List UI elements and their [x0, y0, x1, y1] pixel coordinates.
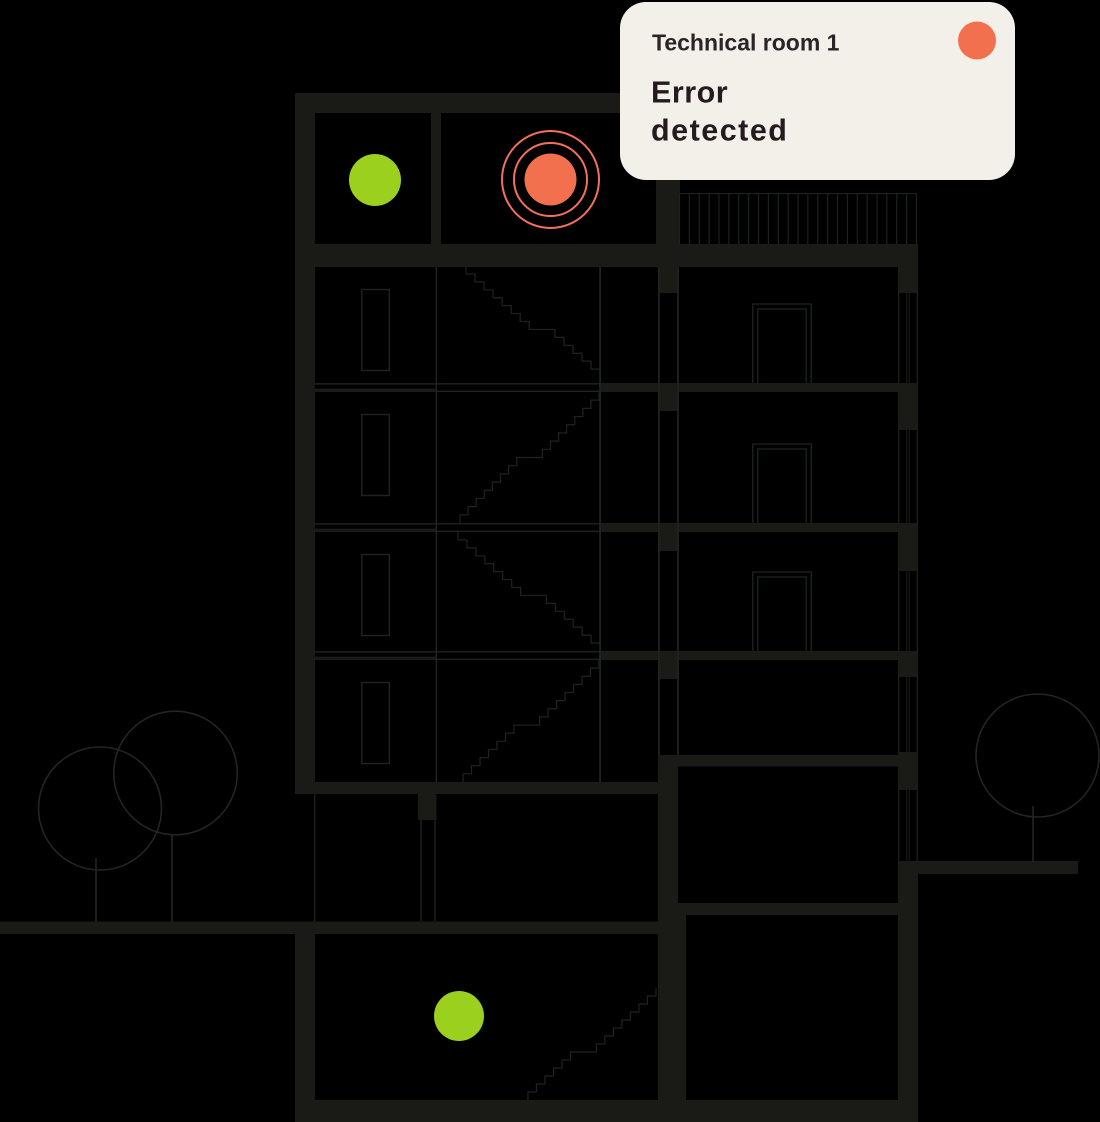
svg-text:Technical room 1: Technical room 1 — [652, 30, 840, 56]
svg-text:Error: Error — [651, 76, 728, 110]
svg-text:detected: detected — [651, 114, 788, 148]
